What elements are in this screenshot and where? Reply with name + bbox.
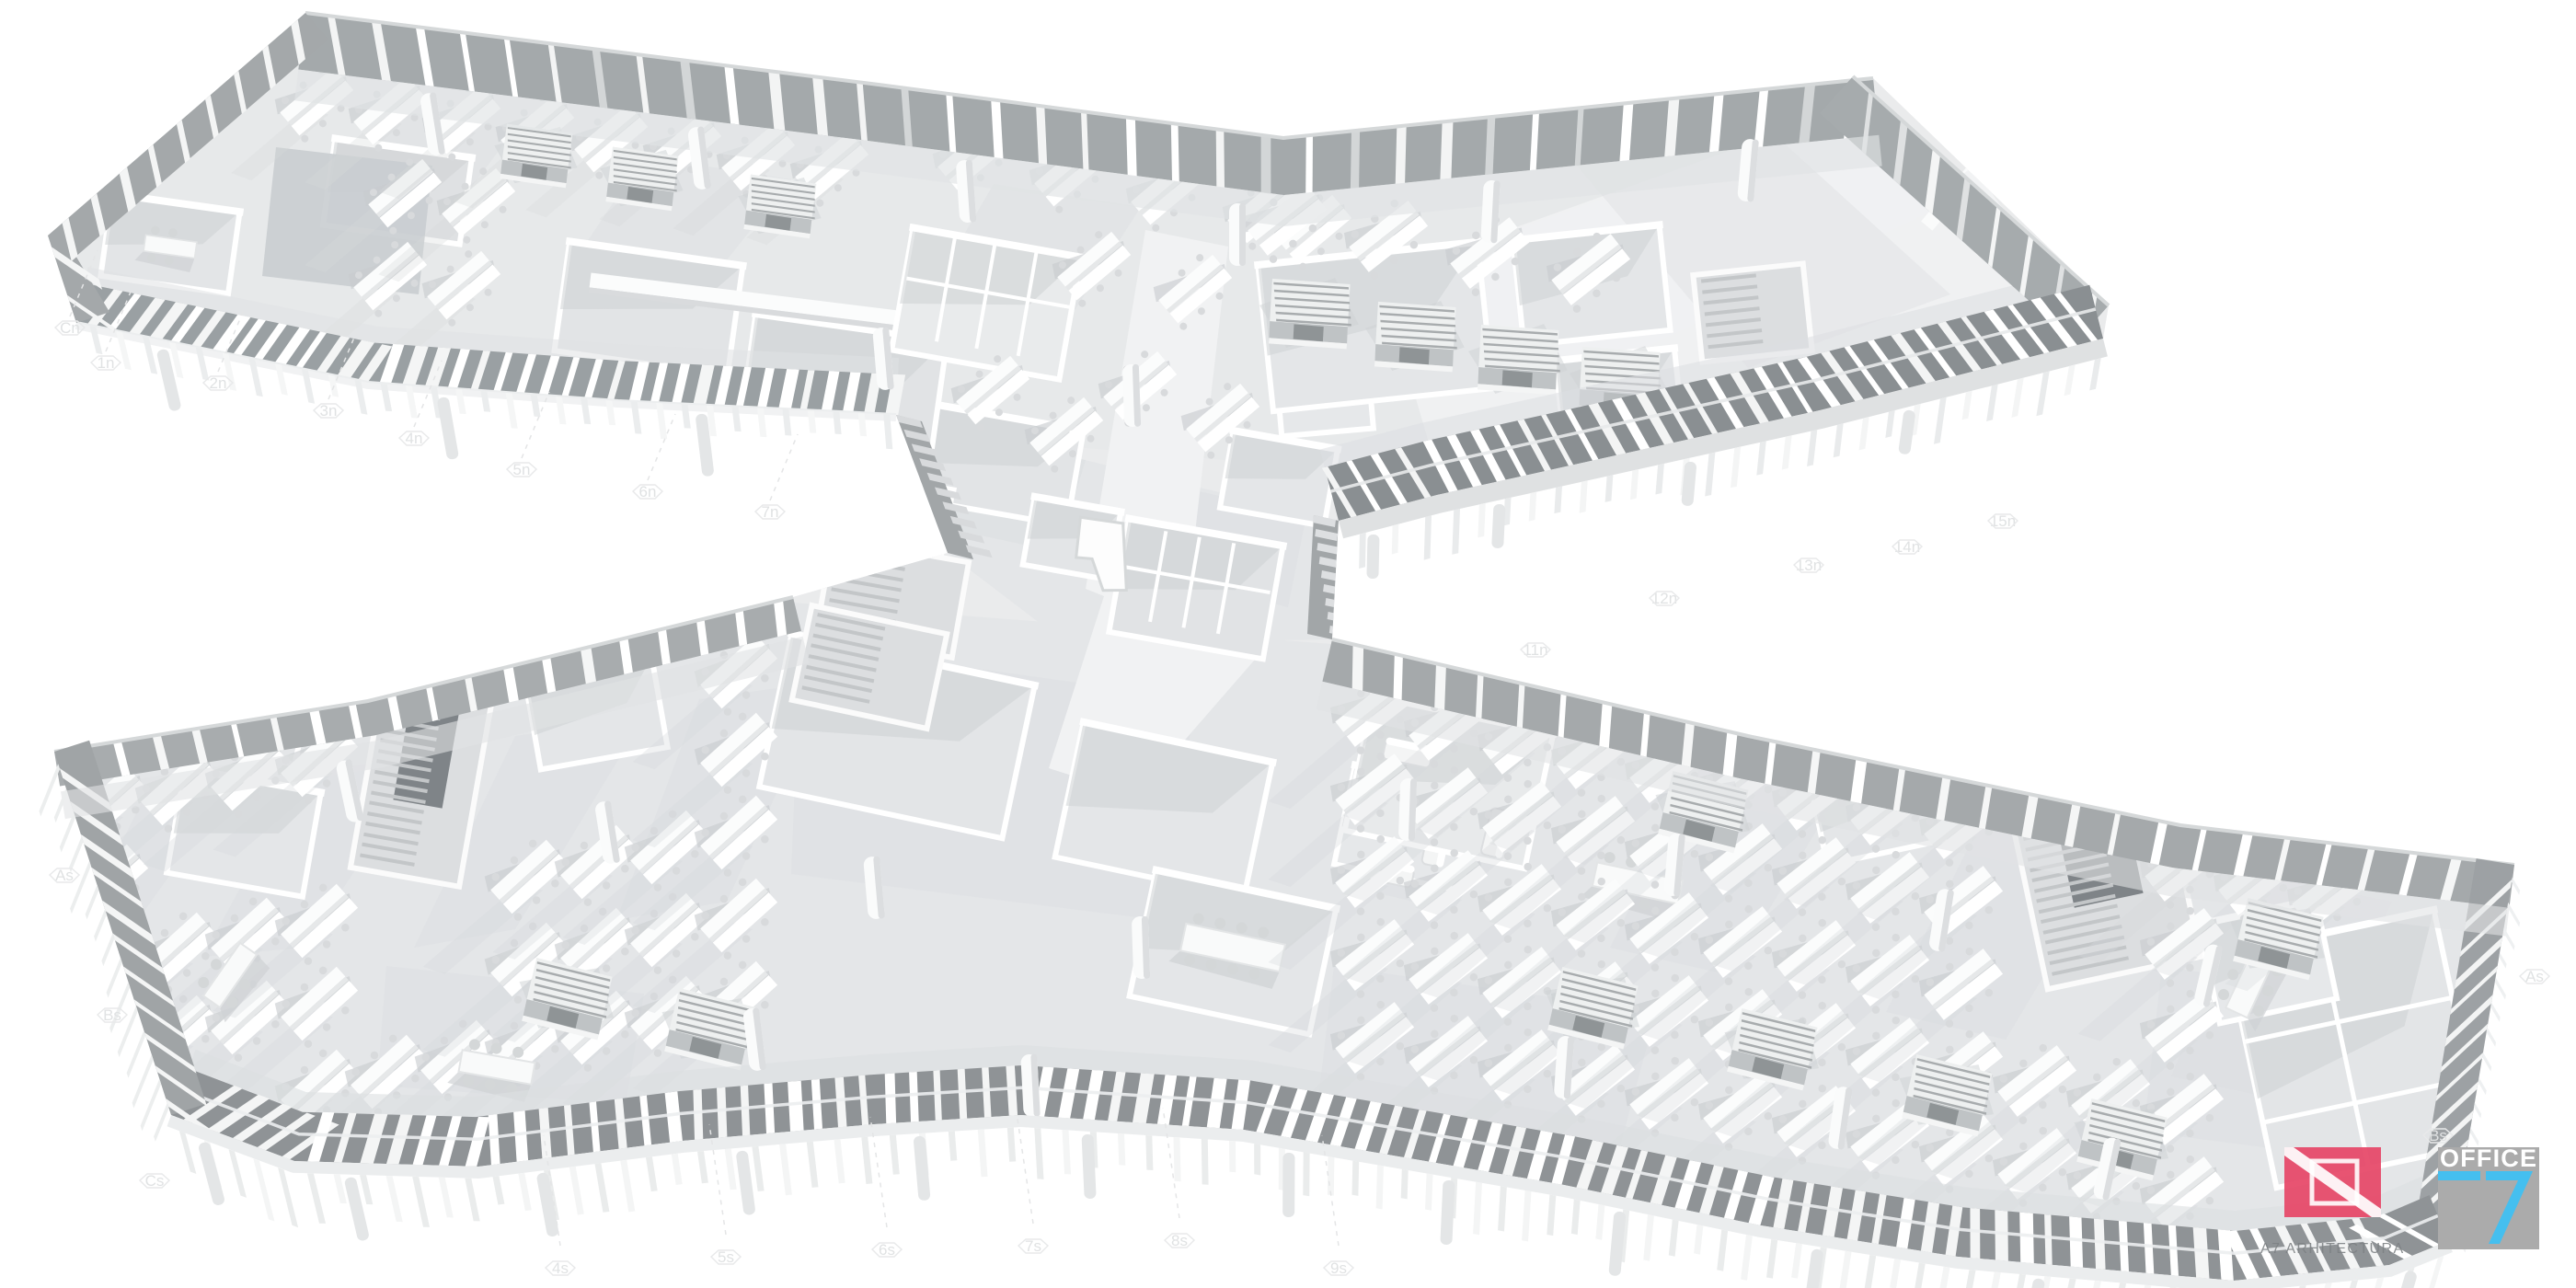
- svg-text:6s: 6s: [879, 1241, 895, 1259]
- svg-text:4n: 4n: [406, 430, 423, 447]
- svg-text:As: As: [2525, 968, 2544, 985]
- svg-text:Bs: Bs: [103, 1006, 121, 1024]
- svg-text:7s: 7s: [1025, 1237, 1041, 1255]
- svg-text:7n: 7n: [762, 503, 779, 521]
- svg-text:As: As: [55, 867, 74, 884]
- svg-text:8s: 8s: [1171, 1232, 1188, 1249]
- svg-text:6n: 6n: [639, 483, 657, 500]
- svg-text:A7 ARHITECTURA: A7 ARHITECTURA: [2260, 1241, 2405, 1257]
- svg-text:9s: 9s: [1330, 1259, 1347, 1277]
- svg-text:Cs: Cs: [145, 1172, 165, 1190]
- svg-text:5n: 5n: [513, 461, 531, 478]
- svg-text:Bs: Bs: [2429, 1127, 2447, 1144]
- svg-text:2n: 2n: [210, 374, 227, 392]
- svg-text:1n: 1n: [98, 354, 115, 372]
- svg-text:4s: 4s: [552, 1259, 569, 1277]
- svg-text:5s: 5s: [718, 1248, 734, 1266]
- svg-text:OFFICE: OFFICE: [2440, 1144, 2537, 1172]
- svg-text:3n: 3n: [320, 402, 338, 420]
- svg-text:Cn: Cn: [60, 319, 80, 337]
